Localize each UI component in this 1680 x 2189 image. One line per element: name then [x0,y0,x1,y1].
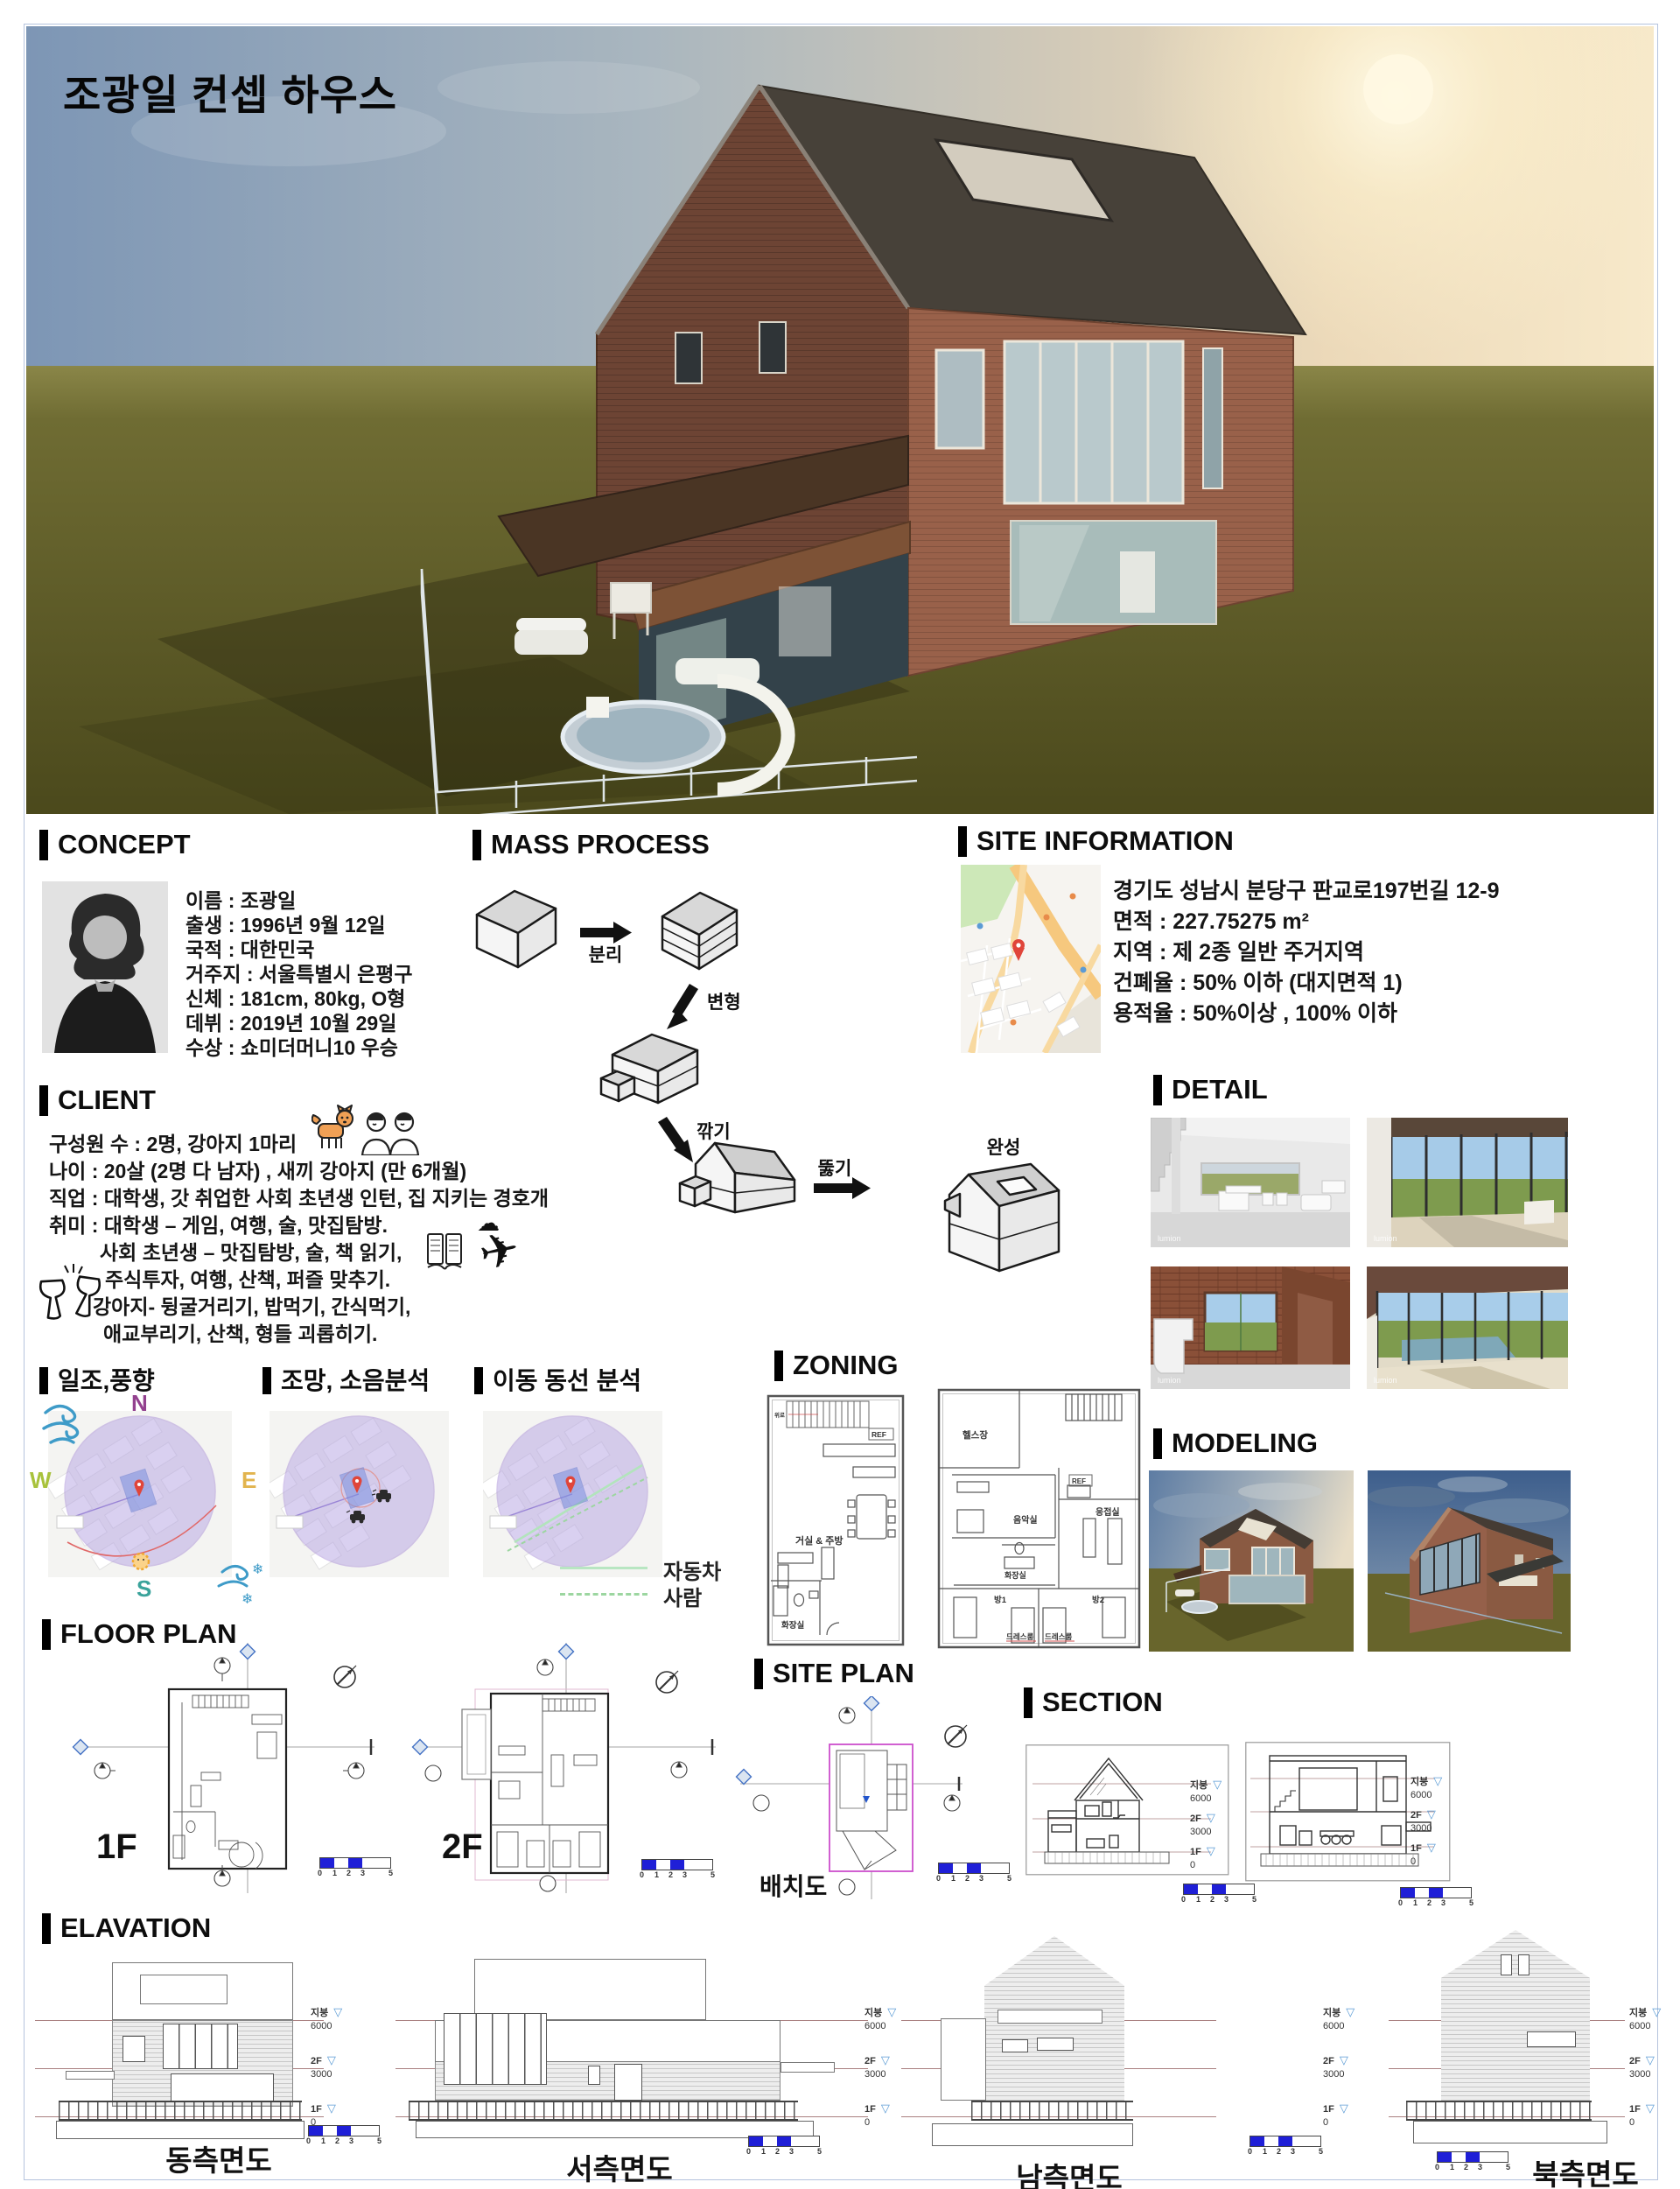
site-plan-caption: 배치도 [759,1868,827,1903]
floor-1f-label: 1F [96,1828,137,1867]
circulation-header: 이동 동선 분석 [474,1367,641,1394]
scale-tick: 0 [746,2147,751,2156]
level-marker-icon: ▽ [1427,1841,1436,1854]
modeling-render-2 [1368,1470,1571,1652]
elevation-north-label: 북측면도 [1498,2151,1673,2189]
level-marker-icon: ▽ [1207,1844,1215,1857]
compass-north: N [131,1390,148,1417]
sunlight-patch [1298,1293,1333,1372]
scale-tick: 3 [789,2147,794,2156]
level-label: 지붕▽6000 [1629,2004,1661,2052]
scale-tick: 5 [1252,1895,1256,1904]
room-label: 음악실 [1013,1514,1038,1526]
concept-title: CONCEPT [58,830,191,860]
compass-south: S [136,1575,151,1603]
scale-tick: 2 [775,2147,780,2156]
site-plan-title: SITE PLAN [773,1659,914,1689]
level-marker-icon: ▽ [887,2005,896,2018]
site-information-header: SITE INFORMATION [958,826,1234,857]
room-label: 방1 [994,1595,1007,1605]
level-label: 2F▽3000 [864,2052,896,2101]
scale-bar: 01235 [1249,2136,1321,2147]
level-marker-icon: ▽ [1213,1778,1221,1791]
scale-tick: 0 [318,1869,322,1877]
scale-tick: 1 [1196,1895,1200,1904]
stair-label: 위로 [774,1411,785,1419]
detail-render-brick-room: lumion [1151,1266,1350,1389]
header-bar [42,1913,51,1944]
detail-render-glass-corner: lumion [1367,1266,1568,1389]
elevation-east-label: 동측면도 [131,2137,306,2179]
level-label: 1F▽0 [1323,2101,1354,2149]
header-bar [1024,1687,1032,1718]
scale-bar: 01235 [308,2125,380,2136]
elevation-north-drawing [1406,1930,1625,2162]
header-bar [474,1367,483,1394]
legend-car-line [560,1567,647,1569]
level-label: 지붕▽6000 [864,2004,896,2052]
snowflake-icon: ❄ [252,1562,263,1577]
elevation-west-drawing [409,1959,872,2143]
scale-tick: 0 [306,2136,311,2145]
elevation-level-labels: 지붕▽60002F▽30001F▽0 [864,2004,896,2149]
profile-line: 수상 : 쇼미더머니10 우승 [185,1031,398,1061]
client-header: CLIENT [39,1085,156,1116]
level-marker-icon: ▽ [1427,1807,1436,1821]
fridge-label: REF [871,1430,886,1439]
scale-tick: 2 [1464,2163,1468,2171]
client-title: CLIENT [58,1085,156,1116]
scale-tick: 2 [1427,1898,1431,1907]
scale-bar: 01235 [1400,1887,1472,1898]
wine-glasses-icon [38,1246,105,1323]
snowflake-icon: ❄ [241,1592,253,1607]
room-label: 거실 & 주방 [795,1534,843,1547]
level-marker-icon: ▽ [1652,2005,1661,2018]
scale-tick: 3 [682,1870,687,1879]
scale-tick: 5 [817,2147,822,2156]
scale-tick: 5 [1319,2147,1323,2156]
scale-tick: 0 [640,1870,644,1879]
view-noise-header: 조망, 소음분석 [262,1367,430,1394]
scale-tick: 1 [332,1869,337,1877]
mass-process-title: MASS PROCESS [491,830,710,860]
scale-tick: 3 [1224,1895,1228,1904]
level-label: 지붕▽6000 [311,2004,342,2052]
header-bar [754,1659,763,1689]
room-label: 화장실 [781,1620,804,1631]
scale-tick: 5 [1469,1898,1473,1907]
level-marker-icon: ▽ [1646,2101,1655,2115]
site-location-map[interactable] [961,865,1101,1053]
scale-bar: 01235 [1183,1884,1255,1895]
elevation-level-labels: 지붕▽60002F▽30001F▽0 [1629,2004,1661,2149]
room-label: 드레스룸 [1045,1632,1072,1641]
floor-2f-label: 2F [442,1828,483,1867]
circulation-title: 이동 동선 분석 [493,1367,641,1394]
level-marker-icon: ▽ [327,2053,336,2066]
detail-title: DETAIL [1172,1075,1268,1105]
scale-tick: 2 [965,1874,969,1883]
detail-render-glass-wall: lumion [1367,1118,1568,1247]
elevation-title: ELAVATION [60,1913,211,1944]
level-label: 지붕▽6000 [1323,2004,1354,2052]
fridge-label: REF [1072,1477,1086,1485]
site-info-line: 면적 : 227.75275 m² [1113,904,1309,936]
detail-render-interior-stairs: lumion [1151,1118,1350,1247]
modeling-title: MODELING [1172,1428,1318,1459]
header-bar [1153,1075,1162,1105]
elevation-south-label: 남측면도 [982,2155,1157,2189]
scale-tick: 1 [761,2147,766,2156]
level-label: 1F▽0 [864,2101,896,2149]
scale-tick: 0 [1398,1898,1403,1907]
header-bar [42,1619,51,1650]
scale-tick: 5 [1007,1874,1011,1883]
white-table [1524,1200,1554,1224]
level-marker-icon: ▽ [333,2005,342,2018]
scale-tick: 3 [1291,2147,1295,2156]
level-label: 2F▽3000 [1410,1807,1442,1840]
hero-render-image [26,26,1654,814]
header-bar [472,830,481,860]
pool [1402,1337,1515,1361]
compass-west: W [30,1467,52,1494]
legend-person-label: 사람 [663,1581,702,1611]
scale-tick: 0 [936,1874,941,1883]
header-bar [39,1367,48,1394]
zoning-header: ZONING [774,1351,899,1381]
legend-person-line [560,1593,647,1596]
client-line: 강아지- 뒹굴거리기, 밥먹기, 간식먹기, [93,1290,410,1320]
elevation-level-labels: 지붕▽60002F▽30001F▽0 [1323,2004,1354,2149]
header-bar [958,826,967,857]
scale-tick: 2 [346,1869,351,1877]
level-marker-icon: ▽ [881,2101,890,2115]
book-icon [426,1232,463,1273]
level-marker-icon: ▽ [1340,2101,1348,2115]
client-line: 직업 : 대학생, 갓 취업한 사회 초년생 인턴, 집 지키는 경호개 [49,1182,549,1211]
mass-final-label: 완성 [987,1138,1021,1158]
mass-process-header: MASS PROCESS [472,830,710,860]
scale-tick: 1 [1413,1898,1417,1907]
level-label: 1F▽0 [1190,1843,1221,1877]
scale-tick: 3 [1478,2163,1482,2171]
site-info-line: 지역 : 제 2종 일반 주거지역 [1113,935,1364,966]
mass-step-label: 변형 [707,992,741,1013]
level-label: 지붕▽6000 [1410,1773,1442,1807]
elevation-header: ELAVATION [42,1913,211,1944]
sun [1363,54,1433,124]
compass-east: E [241,1467,256,1494]
scale-tick: 2 [335,2136,339,2145]
section-level-labels: 지붕▽60002F▽30001F▽0 [1410,1773,1442,1873]
scale-tick: 3 [360,1869,365,1877]
level-marker-icon: ▽ [327,2101,336,2115]
header-bar [39,1085,48,1116]
presentation-board: 조광일 컨셉 하우스 CONCEPT MASS PROCESS SITE INF… [0,0,1680,2189]
scale-tick: 1 [1450,2163,1454,2171]
elevation-west-label: 서측면도 [532,2146,707,2188]
room-label: 응접실 [1095,1506,1120,1518]
scale-tick: 3 [349,2136,353,2145]
render-watermark: lumion [1158,1376,1181,1385]
sun-icon [133,1554,149,1569]
elevation-south-drawing [919,1936,1242,2155]
level-marker-icon: ▽ [1433,1774,1442,1787]
circulation-map [483,1411,662,1577]
wind-icon [42,1400,87,1449]
header-bar [1153,1428,1162,1459]
cold-wind-icon: ❄ ❄ [215,1554,276,1607]
modeling-render-1 [1149,1470,1354,1652]
page-title: 조광일 컨셉 하우스 [63,61,397,122]
scale-tick: 0 [1435,2163,1439,2171]
site-information-title: SITE INFORMATION [976,826,1234,857]
header-bar [774,1351,783,1381]
level-marker-icon: ▽ [1646,2053,1655,2066]
scale-tick: 2 [668,1870,673,1879]
scale-tick: 3 [1441,1898,1445,1907]
scale-tick: 1 [1263,2147,1267,2156]
level-label: 2F▽3000 [1629,2052,1661,2101]
scale-bar: 01235 [319,1857,391,1869]
scale-tick: 5 [388,1869,393,1877]
section-title: SECTION [1042,1687,1163,1718]
zoning-title: ZONING [793,1351,899,1381]
client-line: 애교부리기, 산책, 형들 괴롭히기. [103,1317,377,1347]
render-watermark: lumion [1374,1376,1397,1385]
scale-tick: 2 [1277,2147,1281,2156]
site-info-line: 용적율 : 50%이상 , 100% 이하 [1113,996,1397,1028]
mass-step-label: 분리 [589,945,623,965]
portrait-silhouette [42,881,168,1053]
room-label: 방2 [1092,1595,1104,1605]
scale-tick: 5 [377,2136,381,2145]
dog-icon [311,1105,357,1155]
site-info-line: 건폐율 : 50% 이하 (대지면적 1) [1113,965,1403,997]
level-marker-icon: ▽ [881,2053,890,2066]
client-line: 사회 초년생 – 맛집탐방, 술, 책 읽기, [100,1236,402,1266]
client-line: 취미 : 대학생 – 게임, 여행, 술, 맛집탐방. [49,1209,388,1238]
header-bar [262,1367,271,1394]
hero-render: 조광일 컨셉 하우스 [26,26,1654,814]
level-marker-icon: ▽ [1346,2005,1354,2018]
scale-tick: 1 [321,2136,325,2145]
level-marker-icon: ▽ [1207,1811,1215,1824]
scale-tick: 2 [1210,1895,1214,1904]
client-line: 나이 : 20살 (2명 다 남자) , 새끼 강아지 (만 6개월) [49,1154,466,1184]
zoning-plan-1f: 위로 REF 거실 & 주방 화장실 [766,1393,906,1647]
render-watermark: lumion [1158,1234,1181,1243]
scale-tick: 1 [654,1870,659,1879]
scale-bar: 01235 [641,1859,713,1870]
header-bar [39,830,48,860]
client-line: 주식투자, 여행, 산책, 퍼즐 맞추기. [105,1263,390,1293]
level-label: 1F▽0 [1410,1840,1442,1873]
north-arrow-icon [331,1663,359,1691]
view-noise-map [269,1411,449,1577]
north-arrow-icon [941,1722,969,1750]
room-label: 드레스룸 [1006,1632,1033,1641]
site-info-line: 경기도 성남시 분당구 판교로197번길 12-9 [1113,873,1500,905]
mass-step-label: 뚫기 [818,1159,852,1179]
section-level-labels: 지붕▽60002F▽30001F▽0 [1190,1777,1221,1877]
elevation-east-drawing [52,1962,315,2142]
scale-tick: 3 [979,1874,983,1883]
mass-step-label: 깎기 [696,1122,731,1142]
north-arrow-icon [653,1668,681,1696]
room-label: 헬스장 [962,1429,988,1441]
scale-tick: 5 [710,1870,715,1879]
detail-header: DETAIL [1153,1075,1268,1105]
scale-bar: 01235 [938,1863,1010,1874]
level-marker-icon: ▽ [1340,2053,1348,2066]
modeling-header: MODELING [1153,1428,1318,1459]
view-noise-title: 조망, 소음분석 [281,1367,430,1394]
upper-glass [1004,341,1183,503]
section-header: SECTION [1024,1687,1163,1718]
scale-tick: 1 [951,1874,955,1883]
level-label: 2F▽3000 [1190,1810,1221,1843]
zoning-plan-2f: REF 헬스장 음악실 응접실 화장실 방1 방2 드레스룸 드레스룸 [936,1387,1142,1650]
client-line: 구성원 수 : 2명, 강아지 1마리 [49,1127,297,1157]
render-watermark: lumion [1374,1234,1397,1243]
client-portrait-photo [42,881,168,1053]
concept-header: CONCEPT [39,830,191,860]
scale-bar: 01235 [748,2136,820,2147]
two-people-icon [360,1110,422,1155]
site-plan-header: SITE PLAN [754,1659,914,1689]
level-label: 2F▽3000 [311,2052,342,2101]
level-label: 2F▽3000 [1323,2052,1354,2101]
room-label: 화장실 [1004,1570,1026,1580]
scale-tick: 0 [1248,2147,1252,2156]
level-label: 지붕▽6000 [1190,1777,1221,1810]
scale-tick: 0 [1181,1895,1186,1904]
level-label: 1F▽0 [1629,2101,1661,2149]
